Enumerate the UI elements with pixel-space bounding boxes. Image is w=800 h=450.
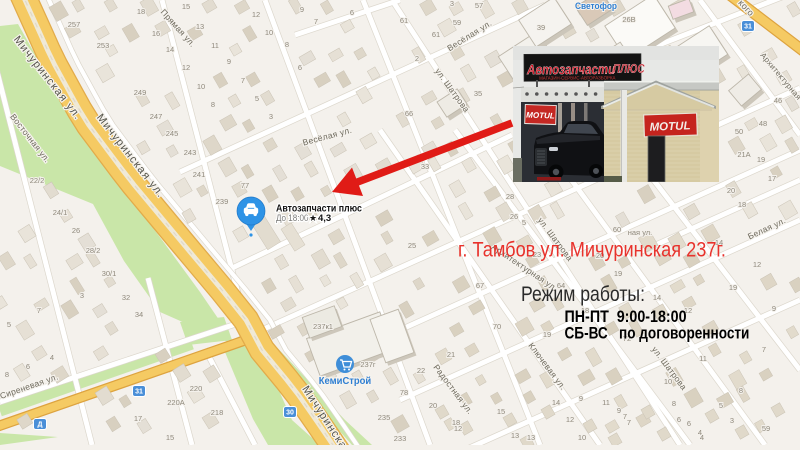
svg-text:18: 18 (137, 7, 145, 16)
svg-text:8: 8 (285, 40, 289, 49)
svg-text:11: 11 (211, 41, 219, 50)
svg-text:14: 14 (552, 398, 560, 407)
svg-text:3: 3 (80, 291, 84, 300)
svg-text:70: 70 (493, 322, 501, 331)
svg-text:78: 78 (400, 388, 408, 397)
svg-text:46: 46 (774, 96, 782, 105)
svg-text:2: 2 (415, 54, 419, 63)
svg-text:13: 13 (196, 22, 204, 31)
svg-text:61: 61 (400, 16, 408, 25)
svg-text:26: 26 (72, 226, 80, 235)
svg-text:77: 77 (241, 181, 249, 190)
svg-text:235: 235 (378, 413, 391, 422)
svg-text:20: 20 (727, 186, 735, 195)
svg-text:4: 4 (700, 433, 704, 442)
svg-text:249: 249 (134, 88, 147, 97)
svg-text:59: 59 (453, 18, 461, 27)
svg-text:24/1: 24/1 (53, 208, 68, 217)
svg-text:МАГАЗИН·СЕРВИС·АВТОРАЗБОРКА: МАГАЗИН·СЕРВИС·АВТОРАЗБОРКА (539, 75, 616, 81)
svg-text:28/2: 28/2 (86, 246, 101, 255)
svg-text:17: 17 (768, 174, 776, 183)
svg-text:241: 241 (193, 170, 206, 179)
svg-text:32: 32 (122, 293, 130, 302)
svg-text:31: 31 (744, 24, 752, 31)
svg-text:30: 30 (286, 410, 294, 417)
svg-text:ная ул.: ная ул. (628, 228, 653, 237)
svg-text:13: 13 (527, 433, 535, 442)
svg-text:60: 60 (613, 225, 621, 234)
svg-text:5: 5 (7, 320, 11, 329)
svg-text:239: 239 (216, 197, 229, 206)
svg-text:12: 12 (753, 260, 761, 269)
svg-text:7: 7 (627, 418, 631, 427)
svg-text:30/1: 30/1 (102, 269, 117, 278)
svg-text:6: 6 (298, 63, 302, 72)
svg-text:9: 9 (617, 406, 621, 415)
svg-text:237к1: 237к1 (313, 322, 333, 331)
svg-text:9: 9 (300, 5, 304, 14)
svg-text:15: 15 (497, 407, 505, 416)
svg-text:15: 15 (182, 2, 190, 11)
svg-text:18: 18 (452, 418, 460, 427)
svg-text:59: 59 (762, 424, 770, 433)
svg-text:8: 8 (672, 399, 676, 408)
svg-text:3: 3 (269, 112, 273, 121)
svg-text:35: 35 (474, 89, 482, 98)
svg-text:14: 14 (166, 45, 174, 54)
svg-text:22/2: 22/2 (30, 176, 45, 185)
svg-text:3: 3 (450, 0, 454, 8)
svg-text:20: 20 (429, 401, 437, 410)
svg-text:5: 5 (719, 401, 723, 410)
svg-text:г. Тамбов ул. Мичуринская 237г: г. Тамбов ул. Мичуринская 237г. (458, 238, 726, 262)
svg-text:10: 10 (265, 28, 273, 37)
svg-text:6: 6 (687, 419, 691, 428)
svg-text:33: 33 (421, 162, 429, 171)
svg-text:15: 15 (166, 433, 174, 442)
svg-text:10: 10 (578, 433, 586, 442)
svg-text:66: 66 (405, 109, 413, 118)
svg-text:6: 6 (26, 362, 30, 371)
svg-text:237г: 237г (360, 360, 376, 369)
svg-text:247: 247 (150, 112, 163, 121)
svg-text:19: 19 (729, 283, 737, 292)
svg-text:67: 67 (476, 281, 484, 290)
svg-text:6: 6 (350, 8, 354, 17)
svg-text:8: 8 (739, 386, 743, 395)
svg-text:14: 14 (653, 293, 661, 302)
svg-text:MOTUL: MOTUL (649, 120, 690, 133)
svg-text:7: 7 (762, 345, 766, 354)
svg-text:8: 8 (211, 100, 215, 109)
svg-text:19: 19 (757, 155, 765, 164)
svg-text:Режим работы:: Режим работы: (521, 283, 645, 307)
svg-text:21: 21 (447, 350, 455, 359)
svg-text:ПЛЮС: ПЛЮС (613, 63, 645, 76)
svg-text:11: 11 (602, 398, 610, 407)
svg-text:34: 34 (135, 310, 143, 319)
svg-text:4: 4 (50, 353, 54, 362)
svg-text:21А: 21А (737, 150, 750, 159)
svg-text:220: 220 (190, 384, 203, 393)
svg-text:257: 257 (68, 20, 81, 29)
svg-text:12: 12 (252, 10, 260, 19)
svg-text:4,3: 4,3 (318, 213, 331, 224)
svg-text:26В: 26В (622, 15, 635, 24)
svg-text:31: 31 (135, 389, 143, 396)
svg-text:19: 19 (543, 330, 551, 339)
svg-text:7: 7 (314, 17, 318, 26)
svg-text:243: 243 (184, 148, 197, 157)
svg-text:28: 28 (506, 192, 514, 201)
svg-text:57: 57 (475, 1, 483, 10)
svg-text:39: 39 (537, 23, 545, 32)
svg-text:5: 5 (522, 218, 526, 227)
svg-text:18: 18 (738, 200, 746, 209)
svg-text:7: 7 (37, 306, 41, 315)
svg-text:13: 13 (511, 431, 519, 440)
svg-text:61: 61 (432, 30, 440, 39)
svg-text:48: 48 (759, 119, 767, 128)
svg-text:233: 233 (394, 434, 407, 443)
svg-text:50: 50 (735, 127, 743, 136)
svg-text:19: 19 (614, 269, 622, 278)
svg-text:КемиСтрой: КемиСтрой (319, 376, 371, 388)
svg-text:СБ-ВС по договоренности: СБ-ВС по договоренности (565, 324, 750, 343)
svg-text:9: 9 (579, 394, 583, 403)
svg-text:26: 26 (510, 212, 518, 221)
svg-text:17: 17 (134, 414, 142, 423)
svg-text:25: 25 (408, 241, 416, 250)
svg-text:9: 9 (772, 304, 776, 313)
svg-text:6: 6 (677, 415, 681, 424)
svg-text:9: 9 (227, 57, 231, 66)
svg-text:245: 245 (166, 129, 179, 138)
svg-text:220А: 220А (167, 398, 185, 407)
svg-text:10: 10 (197, 82, 205, 91)
svg-text:★: ★ (309, 213, 317, 223)
svg-text:Д: Д (38, 422, 43, 429)
svg-text:11: 11 (699, 354, 707, 363)
svg-text:253: 253 (97, 41, 110, 50)
svg-text:5: 5 (255, 94, 259, 103)
svg-text:8: 8 (5, 370, 9, 379)
svg-text:218: 218 (211, 408, 224, 417)
svg-text:16: 16 (152, 29, 160, 38)
svg-text:3: 3 (730, 416, 734, 425)
svg-text:7: 7 (241, 76, 245, 85)
svg-text:12: 12 (566, 415, 574, 424)
svg-text:Светофор: Светофор (575, 1, 618, 12)
svg-text:12: 12 (182, 63, 190, 72)
svg-text:До 18:00: До 18:00 (276, 212, 309, 223)
svg-text:MOTUL: MOTUL (526, 111, 555, 121)
svg-text:22: 22 (417, 366, 425, 375)
